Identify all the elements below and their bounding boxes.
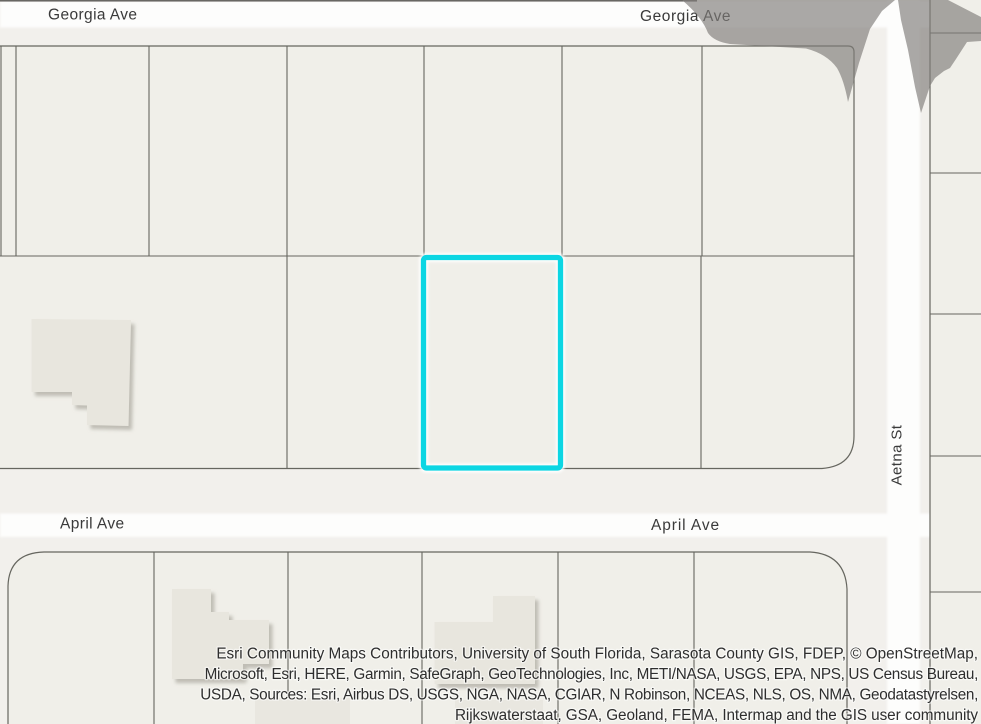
svg-text:USDA, Sources: Esri, Airbus DS: USDA, Sources: Esri, Airbus DS, USGS, NG…	[200, 687, 978, 704]
svg-text:April Ave: April Ave	[651, 517, 720, 534]
svg-text:Esri Community Maps Contributo: Esri Community Maps Contributors, Univer…	[216, 646, 978, 663]
svg-text:Georgia Ave: Georgia Ave	[48, 7, 137, 24]
svg-text:Microsoft, Esri, HERE, Garmin,: Microsoft, Esri, HERE, Garmin, SafeGraph…	[205, 666, 978, 683]
svg-text:April Ave: April Ave	[60, 516, 125, 533]
svg-text:Aetna St: Aetna St	[889, 424, 906, 485]
svg-text:Rijkswaterstaat, GSA, Geoland,: Rijkswaterstaat, GSA, Geoland, FEMA, Int…	[455, 707, 978, 724]
